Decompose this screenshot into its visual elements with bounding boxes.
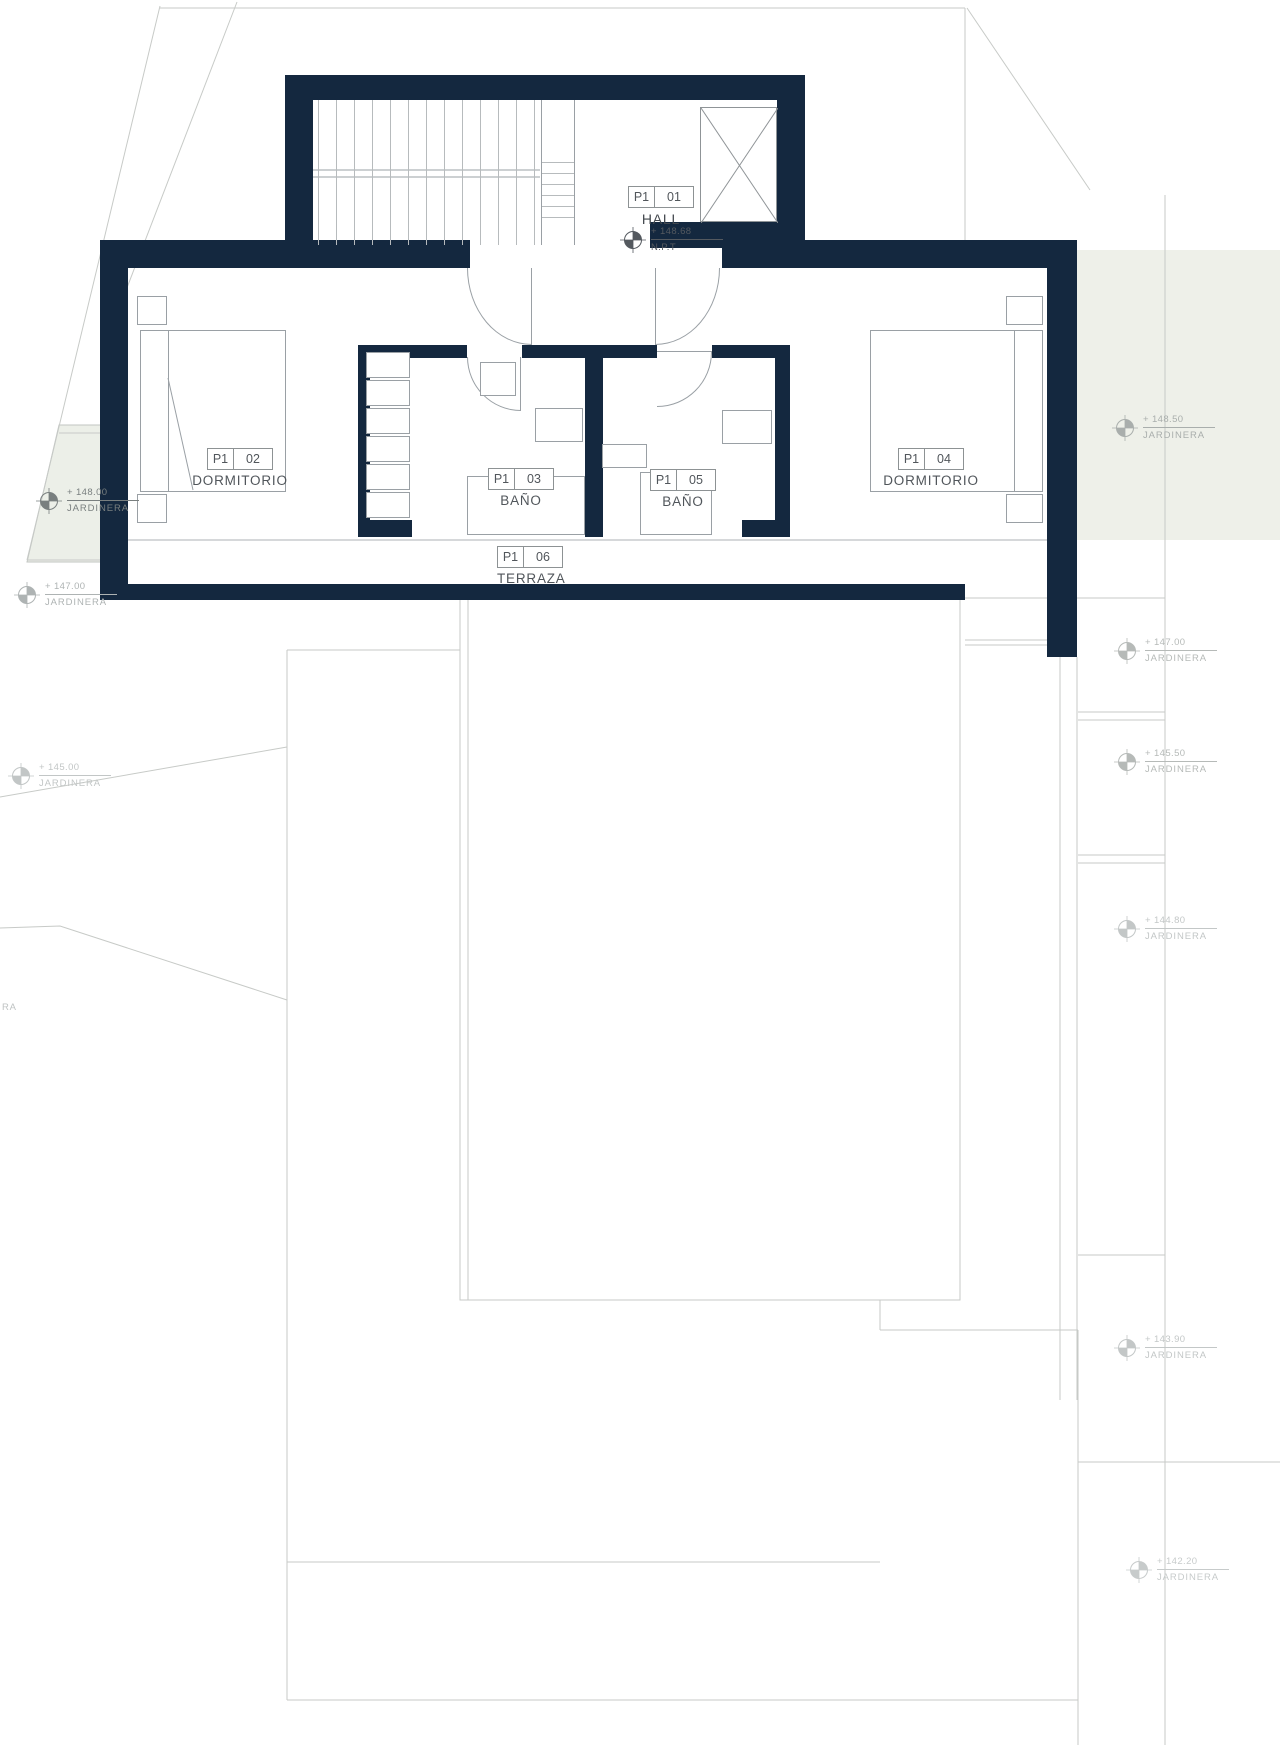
wall-segment <box>775 357 790 537</box>
door-leaf <box>531 268 532 345</box>
planter-marker: + 147.00 JARDINERA <box>1114 637 1217 664</box>
room-tag-prefix: P1 <box>498 547 524 567</box>
planter-marker: + 145.50 JARDINERA <box>1114 748 1217 775</box>
room-tag-number: 04 <box>925 449 963 469</box>
planter-marker: + 148.50 JARDINERA <box>1112 414 1215 441</box>
level-target-icon <box>14 582 40 608</box>
room-label-hall: P1 01 HALL <box>628 186 694 227</box>
room-tag-prefix: P1 <box>629 187 655 207</box>
level-target-icon <box>620 227 646 253</box>
planter-elevation: + 145.50 <box>1145 748 1217 762</box>
planter-elevation: + 144.80 <box>1145 915 1217 929</box>
planter-marker: + 148.00 JARDINERA <box>36 487 139 514</box>
bed-headboard-line <box>1014 330 1015 492</box>
planter-label: JARDINERA <box>67 501 139 514</box>
door-leaf <box>657 351 712 352</box>
room-tag-number: 02 <box>234 449 272 469</box>
level-target-icon <box>1114 638 1140 664</box>
elevator-shaft <box>700 107 777 222</box>
nightstand <box>137 494 167 523</box>
wall-segment <box>742 520 790 537</box>
room-label-dormitorio-04: P1 04 DORMITORIO <box>898 448 964 488</box>
bath-fixture <box>722 410 772 444</box>
wall-segment <box>285 75 805 100</box>
planter-label: JARDINERA <box>1157 1570 1229 1583</box>
wardrobe-cell <box>366 380 410 406</box>
level-target-icon <box>36 488 62 514</box>
level-target-icon <box>1114 916 1140 942</box>
planter-label: JARDINERA <box>39 776 111 789</box>
wall-segment <box>1047 268 1077 657</box>
wall-segment <box>285 100 313 248</box>
planter-elevation: + 148.50 <box>1143 414 1215 428</box>
level-target-icon <box>1126 1557 1152 1583</box>
room-name: TERRAZA <box>497 571 563 586</box>
room-tag: P1 02 <box>207 448 273 470</box>
bath-fixture <box>602 444 647 468</box>
elevator-x-icon <box>701 108 778 223</box>
wall-segment <box>358 520 412 537</box>
room-tag-prefix: P1 <box>651 470 677 490</box>
planter-label: JARDINERA <box>1145 651 1217 664</box>
planter-elevation: + 142.20 <box>1157 1556 1229 1570</box>
room-name: BAÑO <box>488 493 554 508</box>
wardrobe-cell <box>366 464 410 490</box>
level-elevation: + 148.68 <box>651 226 723 240</box>
planter-elevation: + 148.00 <box>67 487 139 501</box>
planter-label: JARDINERA <box>1145 762 1217 775</box>
room-tag-number: 05 <box>677 470 715 490</box>
planter-label: JARDINERA <box>45 595 117 608</box>
planter-marker: + 145.00 JARDINERA <box>8 762 111 789</box>
nightstand <box>137 296 167 325</box>
room-name: HALL <box>628 211 694 227</box>
room-tag-prefix: P1 <box>489 469 515 489</box>
room-name: DORMITORIO <box>861 473 1001 488</box>
room-tag: P1 03 <box>488 468 554 490</box>
hall-level-marker: + 148.68 N.P.T <box>620 226 723 253</box>
level-target-icon <box>1112 415 1138 441</box>
level-target-icon <box>8 763 34 789</box>
clipped-planter-label: RA <box>2 1002 17 1013</box>
room-tag-number: 01 <box>655 187 693 207</box>
level-target-icon <box>1114 749 1140 775</box>
room-tag: P1 06 <box>497 546 563 568</box>
room-tag: P1 01 <box>628 186 694 208</box>
nightstand <box>1006 296 1043 325</box>
room-name: BAÑO <box>650 494 716 509</box>
wardrobe-cell <box>366 436 410 462</box>
wall-segment <box>585 345 603 537</box>
door-leaf <box>520 357 521 411</box>
stair-divider <box>574 100 575 245</box>
room-tag-prefix: P1 <box>899 449 925 469</box>
nightstand <box>1006 494 1043 523</box>
planter-label: JARDINERA <box>1145 929 1217 942</box>
bed-headboard-line <box>168 330 169 492</box>
wall-segment <box>100 268 128 600</box>
planter-marker: + 143.90 JARDINERA <box>1114 1334 1217 1361</box>
room-tag-number: 06 <box>524 547 562 567</box>
wardrobe-cell <box>366 492 410 518</box>
room-label-terraza: P1 06 TERRAZA <box>497 546 563 586</box>
level-target-icon <box>1114 1335 1140 1361</box>
planter-elevation: + 147.00 <box>45 581 117 595</box>
room-tag-prefix: P1 <box>208 449 234 469</box>
planter-marker: + 144.80 JARDINERA <box>1114 915 1217 942</box>
room-label-bano-05: P1 05 BAÑO <box>650 469 716 509</box>
bath-fixture <box>480 362 516 396</box>
door-leaf <box>655 268 656 345</box>
bath-fixture <box>535 408 583 442</box>
level-datum: N.P.T <box>651 240 723 253</box>
planter-marker: + 142.20 JARDINERA <box>1126 1556 1229 1583</box>
floor-plan-canvas: P1 01 HALL + 148.68 N.P.T P1 02 DORMITOR… <box>0 0 1280 1745</box>
planter-label: JARDINERA <box>1145 1348 1217 1361</box>
wardrobe-cell <box>366 352 410 378</box>
planter-elevation: + 145.00 <box>39 762 111 776</box>
room-name: DORMITORIO <box>170 473 310 488</box>
wall-segment <box>722 240 1077 268</box>
room-label-bano-03: P1 03 BAÑO <box>488 468 554 508</box>
planter-label: JARDINERA <box>1143 428 1215 441</box>
room-tag: P1 05 <box>650 469 716 491</box>
wardrobe-cell <box>366 408 410 434</box>
room-tag-number: 03 <box>515 469 553 489</box>
room-label-dormitorio-02: P1 02 DORMITORIO <box>207 448 273 488</box>
planter-fill-right <box>1077 250 1280 540</box>
planter-elevation: + 143.90 <box>1145 1334 1217 1348</box>
planter-elevation: + 147.00 <box>1145 637 1217 651</box>
stair-treads <box>318 100 535 245</box>
wall-segment <box>100 584 965 600</box>
planter-marker: + 147.00 JARDINERA <box>14 581 117 608</box>
room-tag: P1 04 <box>898 448 964 470</box>
stair-return-treads <box>542 162 574 220</box>
